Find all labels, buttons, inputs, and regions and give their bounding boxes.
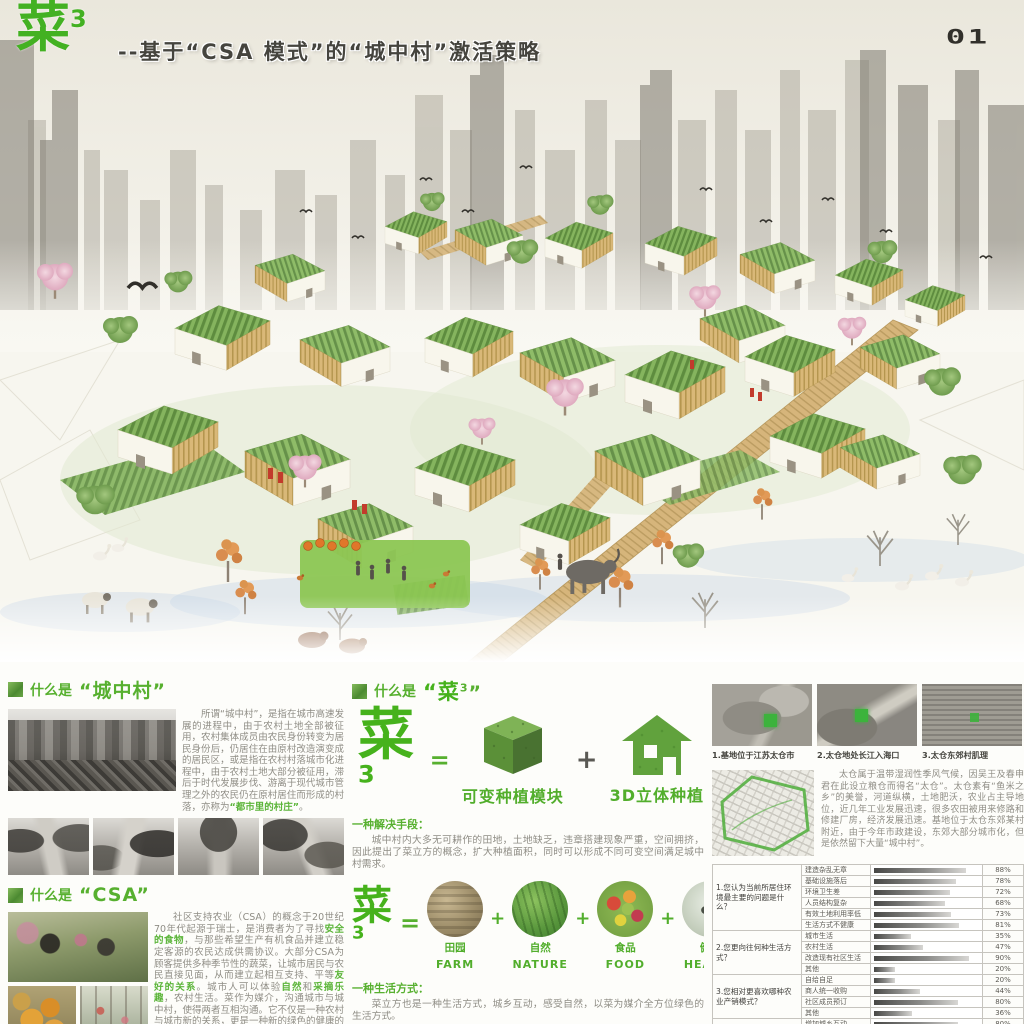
survey-percent: 36% (983, 1008, 1024, 1019)
survey-bar (874, 879, 956, 884)
site-plan-map (712, 770, 814, 856)
lifestyle-label-en: HEALTH (684, 958, 704, 971)
lifestyle-label-en: FOOD (606, 958, 645, 971)
survey-percent: 20% (983, 964, 1024, 975)
lifestyle-label-zh: 自然 (530, 940, 551, 955)
heading-cai3: 什么是 “菜3” (352, 676, 704, 706)
survey-percent: 81% (983, 920, 1024, 931)
lifestyle-label-en: NATURE (513, 958, 568, 971)
survey-percent: 72% (983, 887, 1024, 898)
csa-harvest-photo (8, 986, 76, 1024)
heading-csa: 什么是 “CSA” (8, 884, 344, 906)
survey-option: 自给自足 (802, 975, 871, 986)
food-photo (597, 881, 653, 937)
urban-village-paragraph: 所谓“城中村”，是指在城市高速发展的进程中，由于农村土地全部被征用，农村集体成员… (182, 709, 344, 813)
survey-option: 农村生活 (802, 942, 871, 953)
plus-sign: + (575, 908, 590, 929)
street-photo-4 (263, 818, 344, 875)
survey-option: 商人统一收购 (802, 986, 871, 997)
hero-rendering: 菜3 --基于“CSA 模式”的“城中村”激活策略 01 (0, 0, 1024, 662)
survey-question: 2.您更向往何种生活方式？ (713, 931, 802, 975)
survey-bar (874, 1011, 912, 1016)
logo-cai3: 菜3 (16, 0, 87, 59)
lifestyle-label-en: FARM (436, 958, 474, 971)
map-figure-1: 1.基地位于江苏太仓市 (712, 684, 812, 761)
equals-sign: = (430, 746, 450, 774)
survey-percent: 44% (983, 986, 1024, 997)
survey-bar (874, 945, 923, 950)
plus-sign: + (660, 908, 675, 929)
brand: 菜3 (16, 4, 87, 53)
lifestyle-label-zh: 田园 (445, 940, 466, 955)
cai3-lhs: 菜3 (358, 712, 418, 807)
survey-percent: 20% (983, 975, 1024, 986)
lifestyle-item-farm: 田园FARM (427, 881, 483, 971)
csa-orchard-photo (80, 986, 148, 1024)
survey-table: 1.您认为当前所居住环境最主要的问题是什么？建造杂乱无章88%基础设施落后78%… (712, 864, 1024, 1024)
village-illustration (0, 0, 1024, 662)
csa-photos (8, 912, 148, 1024)
satellite-map-taicang (712, 684, 812, 746)
survey-row: 4.您觉得社区支持农业的优势在何处？增加城乡互动80% (713, 1019, 1024, 1024)
survey-percent: 35% (983, 931, 1024, 942)
csa-paragraph: 社区支持农业（CSA）的概念于20世纪70年代起源于瑞士，是消费者为了寻找安全的… (154, 912, 344, 1024)
competition-board: 菜3 --基于“CSA 模式”的“城中村”激活策略 01 什么是 “城中村” 所… (0, 0, 1024, 1024)
village-street-photos (8, 818, 344, 875)
module-label: 可变种植模块 (462, 783, 564, 807)
lifestyle-item-food: 食品FOOD (597, 881, 653, 971)
survey-question: 1.您认为当前所居住环境最主要的问题是什么？ (713, 865, 802, 931)
survey-option: 增加城乡互动 (802, 1019, 871, 1024)
survey-bar (874, 967, 895, 972)
survey-option: 改造现有社区生活 (802, 953, 871, 964)
survey-question: 3.您相对更喜欢哪种农业产销模式？ (713, 975, 802, 1019)
lifestyle-label-zh: 健康 (700, 940, 704, 955)
planting-item: 3D立体种植 (610, 713, 704, 806)
solution-text: 城中村内大多无可耕作的田地，土地缺乏，违章搭建现象严重，空间拥挤，因此提出了菜立… (352, 835, 704, 871)
survey-percent: 73% (983, 909, 1024, 920)
survey-option: 基础设施落后 (802, 876, 871, 887)
map-caption: 3.太仓东郊村肌理 (922, 749, 1022, 761)
panels: 什么是 “城中村” 所谓“城中村”，是指在城市高速发展的进程中，由于农村土地全部… (0, 664, 1024, 1024)
site-description: 太仓属于温带湿润性季风气候，因吴王及春申君在此设立粮仓而得名“太仓”。太仓素有“… (821, 770, 1024, 856)
health-photo (682, 881, 704, 937)
lifestyle-text: 菜立方也是一种生活方式，城乡互动，感受自然，以菜为媒介全方位绿色的生活方式。 (352, 999, 704, 1023)
survey-bar (874, 978, 895, 983)
module-item: 可变种植模块 (462, 712, 564, 807)
cai3-lhs: 菜3 (352, 889, 392, 957)
survey-bar (874, 901, 945, 906)
lifestyle-item-nature: 自然NATURE (512, 881, 568, 971)
survey-option: 人员结构复杂 (802, 898, 871, 909)
survey-row: 1.您认为当前所居住环境最主要的问题是什么？建造杂乱无章88% (713, 865, 1024, 876)
survey-percent: 68% (983, 898, 1024, 909)
solution-title: 一种解决手段： (352, 816, 704, 832)
nature-photo (512, 881, 568, 937)
plus-sign: + (490, 908, 505, 929)
column-site: 1.基地位于江苏太仓市 2.太仓地处长江入海口 3.太仓东郊村肌理 (712, 664, 1024, 1024)
survey-percent: 78% (983, 876, 1024, 887)
survey-option: 其他 (802, 1008, 871, 1019)
survey-option: 社区成员预订 (802, 997, 871, 1008)
survey-option: 其他 (802, 964, 871, 975)
lifestyle-title: 一种生活方式： (352, 980, 704, 996)
csa-field-photo (8, 912, 148, 982)
survey-bar (874, 989, 920, 994)
survey-percent: 80% (983, 1019, 1024, 1024)
lifestyle-item-health: 健康HEALTH (682, 881, 704, 971)
survey-bar (874, 934, 911, 939)
survey-bar (874, 956, 969, 961)
heading-urban-village: 什么是 “城中村” (8, 676, 344, 703)
grass-thumb-icon (8, 682, 23, 697)
survey-option: 环境卫生差 (802, 887, 871, 898)
texture-map-east-suburb (922, 684, 1022, 746)
survey-bar (874, 890, 950, 895)
cai-equation-modules: 菜3 = 可变种植模块 + (358, 712, 704, 807)
grass-thumb-icon (8, 888, 23, 903)
map-caption: 2.太仓地处长江入海口 (817, 749, 917, 761)
survey-percent: 88% (983, 865, 1024, 876)
survey-option: 建造杂乱无章 (802, 865, 871, 876)
page-number: 01 (946, 26, 990, 48)
map-figure-3: 3.太仓东郊村肌理 (922, 684, 1022, 761)
survey-bar (874, 923, 959, 928)
survey-percent: 80% (983, 997, 1024, 1008)
planting-label: 3D立体种植 (610, 782, 704, 806)
survey-percent: 90% (983, 953, 1024, 964)
survey-option: 城市生活 (802, 931, 871, 942)
farm-photo (427, 881, 483, 937)
equals-sign: = (400, 909, 420, 937)
map-figure-2: 2.太仓地处长江入海口 (817, 684, 917, 761)
survey-bar (874, 912, 951, 917)
street-photo-2 (93, 818, 174, 875)
survey-option: 有效土地利用率低 (802, 909, 871, 920)
street-photo-1 (8, 818, 89, 875)
survey-question: 4.您觉得社区支持农业的优势在何处？ (713, 1019, 802, 1024)
survey-option: 生活方式不健康 (802, 920, 871, 931)
site-maps: 1.基地位于江苏太仓市 2.太仓地处长江入海口 3.太仓东郊村肌理 (712, 684, 1024, 761)
cai-equation-lifestyle: 菜3 = 田园FARM+自然NATURE+食品FOOD+健康HEALTH (352, 881, 704, 971)
column-urban-village: 什么是 “城中村” 所谓“城中村”，是指在城市高速发展的进程中，由于农村土地全部… (8, 664, 344, 1024)
map-caption: 1.基地位于江苏太仓市 (712, 749, 812, 761)
survey-row: 2.您更向往何种生活方式？城市生活35% (713, 931, 1024, 942)
column-cai3: 什么是 “菜3” 菜3 = 可变种植模块 (352, 664, 704, 1024)
poster-subtitle: --基于“CSA 模式”的“城中村”激活策略 (118, 36, 541, 66)
lifestyle-label-zh: 食品 (615, 940, 636, 955)
survey-percent: 47% (983, 942, 1024, 953)
survey-row: 3.您相对更喜欢哪种农业产销模式？自给自足20% (713, 975, 1024, 986)
survey-bar (874, 1000, 958, 1005)
satellite-map-yangtze (817, 684, 917, 746)
survey-bar (874, 868, 966, 873)
urban-village-aerial-photo (8, 709, 176, 791)
street-photo-3 (178, 818, 259, 875)
grass-cube-icon (478, 712, 548, 780)
plus-sign: + (576, 745, 598, 775)
grass-thumb-icon (352, 684, 367, 699)
grass-house-icon (618, 713, 696, 779)
